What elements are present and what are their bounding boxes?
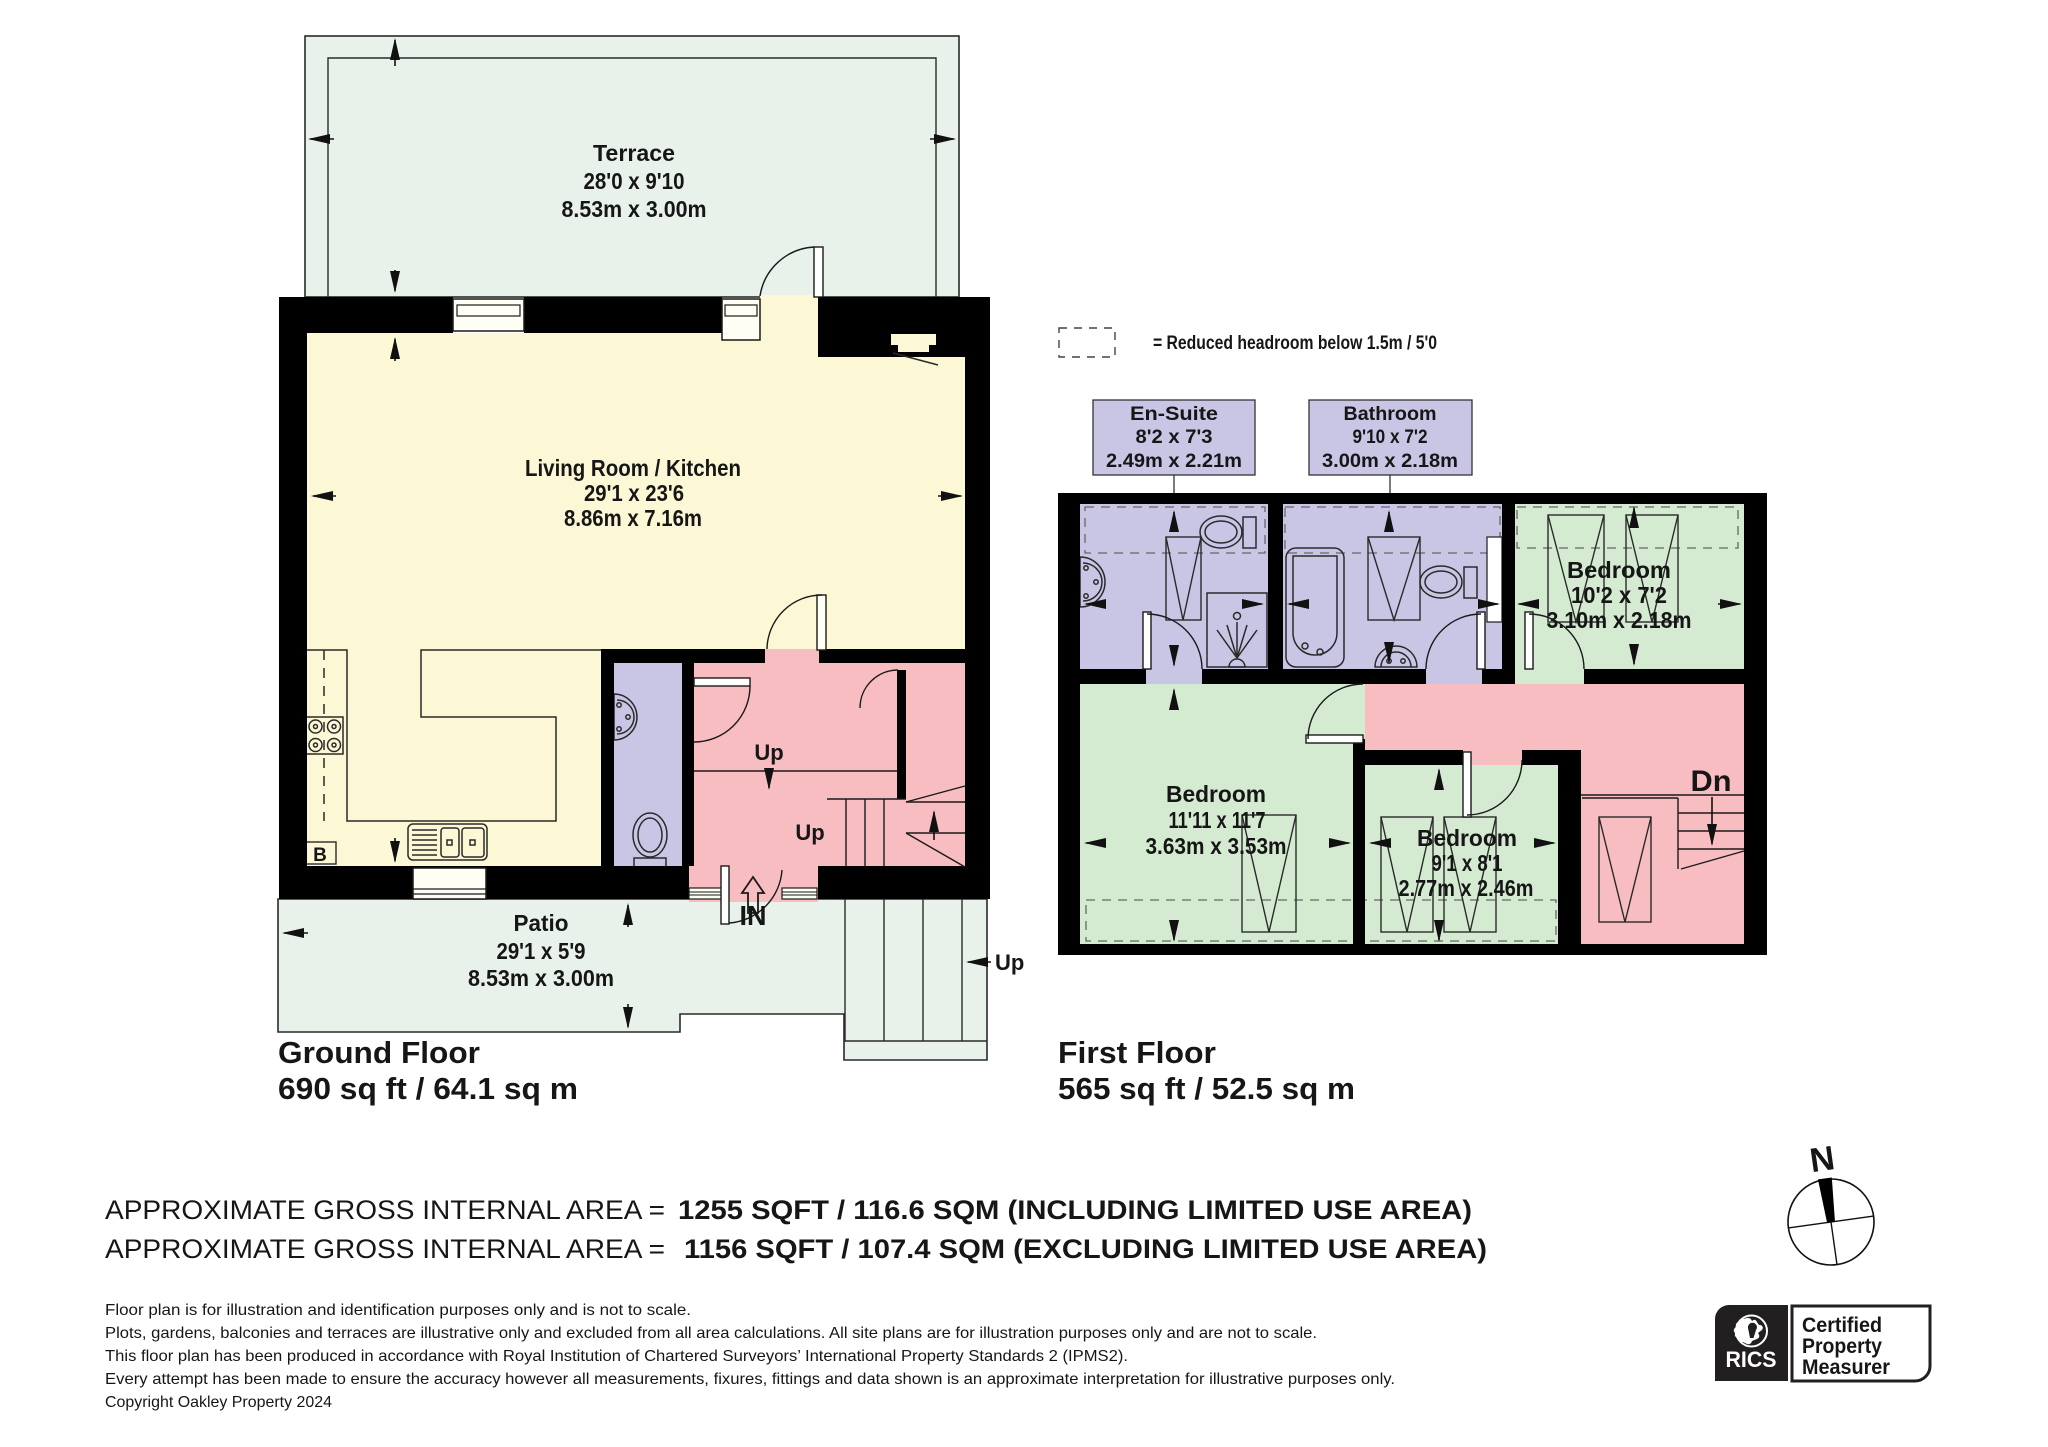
svg-text:29'1 x 23'6: 29'1 x 23'6 — [584, 480, 684, 506]
svg-text:3.00m x 2.18m: 3.00m x 2.18m — [1322, 450, 1458, 472]
svg-text:B: B — [313, 845, 327, 866]
svg-text:Certified: Certified — [1802, 1314, 1882, 1337]
svg-text:IN: IN — [740, 900, 767, 931]
svg-text:Plots, gardens, balconies and: Plots, gardens, balconies and terraces a… — [105, 1325, 1317, 1342]
svg-text:APPROXIMATE GROSS INTERNAL ARE: APPROXIMATE GROSS INTERNAL AREA =1156 SQ… — [105, 1234, 1487, 1264]
svg-text:Bedroom: Bedroom — [1417, 825, 1517, 851]
svg-text:Copyright Oakley Property 2024: Copyright Oakley Property 2024 — [105, 1394, 332, 1411]
svg-text:11'11 x 11'7: 11'11 x 11'7 — [1169, 807, 1266, 833]
svg-text:8.53m x 3.00m: 8.53m x 3.00m — [562, 196, 707, 222]
svg-text:10'2 x 7'2: 10'2 x 7'2 — [1571, 582, 1667, 608]
svg-text:9'10 x 7'2: 9'10 x 7'2 — [1353, 426, 1428, 448]
svg-text:8.86m x 7.16m: 8.86m x 7.16m — [564, 505, 702, 531]
svg-text:Ground Floor: Ground Floor — [278, 1035, 480, 1070]
svg-text:Measurer: Measurer — [1802, 1356, 1890, 1379]
svg-text:Dn: Dn — [1691, 765, 1732, 798]
svg-text:Up: Up — [754, 740, 783, 765]
svg-text:Floor plan is for illustration: Floor plan is for illustration and ident… — [105, 1302, 691, 1319]
svg-text:This floor plan has been produ: This floor plan has been produced in acc… — [105, 1348, 1128, 1365]
svg-text:8'2 x 7'3: 8'2 x 7'3 — [1136, 426, 1213, 448]
svg-text:8.53m x 3.00m: 8.53m x 3.00m — [468, 965, 614, 991]
svg-text:3.10m x 2.18m: 3.10m x 2.18m — [1547, 607, 1692, 633]
svg-text:Up: Up — [795, 820, 824, 845]
svg-text:28'0 x 9'10: 28'0 x 9'10 — [584, 168, 685, 194]
svg-text:9'1 x 8'1: 9'1 x 8'1 — [1432, 850, 1503, 876]
svg-text:690 sq ft / 64.1 sq m: 690 sq ft / 64.1 sq m — [278, 1071, 578, 1106]
svg-text:2.77m x 2.46m: 2.77m x 2.46m — [1399, 875, 1534, 901]
svg-text:Bedroom: Bedroom — [1567, 557, 1671, 583]
svg-text:En-Suite: En-Suite — [1130, 403, 1218, 425]
svg-text:= Reduced headroom below 1.5m: = Reduced headroom below 1.5m / 5'0 — [1153, 333, 1437, 354]
svg-text:29'1 x 5'9: 29'1 x 5'9 — [497, 938, 586, 964]
svg-text:Bedroom: Bedroom — [1166, 781, 1266, 807]
svg-text:3.63m x 3.53m: 3.63m x 3.53m — [1146, 833, 1287, 859]
svg-text:Living Room / Kitchen: Living Room / Kitchen — [525, 455, 741, 481]
svg-text:Bathroom: Bathroom — [1344, 403, 1437, 425]
svg-text:RICS: RICS — [1726, 1347, 1777, 1372]
svg-text:565 sq ft / 52.5 sq m: 565 sq ft / 52.5 sq m — [1058, 1071, 1355, 1106]
svg-text:Property: Property — [1802, 1335, 1882, 1358]
svg-text:Up: Up — [995, 950, 1024, 975]
svg-text:First Floor: First Floor — [1058, 1035, 1216, 1070]
svg-text:Terrace: Terrace — [593, 140, 675, 166]
svg-text:APPROXIMATE GROSS INTERNAL ARE: APPROXIMATE GROSS INTERNAL AREA =1255 SQ… — [105, 1195, 1472, 1225]
svg-text:Patio: Patio — [514, 910, 569, 936]
svg-text:2.49m x 2.21m: 2.49m x 2.21m — [1106, 450, 1242, 472]
svg-text:Every attempt has been made to: Every attempt has been made to ensure th… — [105, 1371, 1395, 1388]
svg-text:N: N — [1807, 1139, 1837, 1180]
